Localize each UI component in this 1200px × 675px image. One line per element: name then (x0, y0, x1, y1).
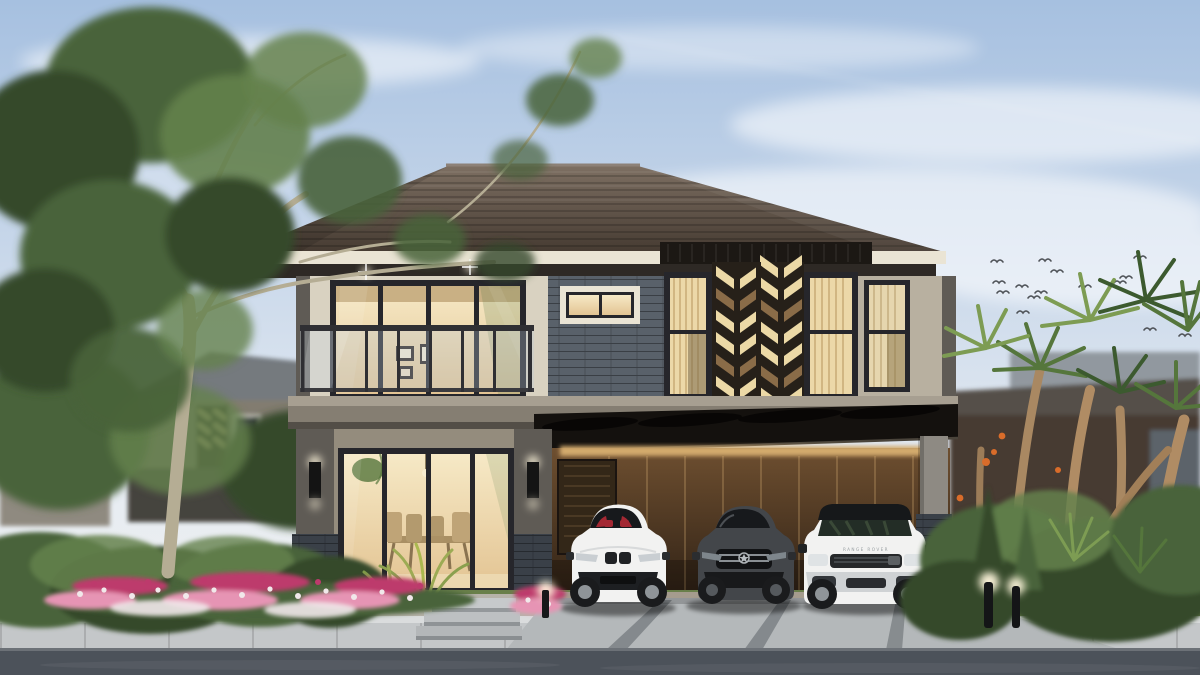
sedan-mirror-left (692, 552, 700, 560)
sedan-mirror-right (788, 552, 796, 560)
coupe-mirror-right (662, 552, 670, 560)
suv-mirror-left (798, 544, 807, 553)
gold-light-strip (560, 446, 942, 456)
suv-badge (888, 556, 900, 565)
side-window (864, 280, 910, 392)
wall-sconce-right (526, 455, 540, 510)
suv-black-roof (818, 504, 912, 520)
wall-sconce-left (308, 455, 322, 510)
scene-canvas: RANGE ROVER (0, 0, 1200, 675)
stone-wall-section (548, 276, 664, 402)
road (0, 648, 1200, 675)
sedan-grille (716, 549, 772, 569)
suv-hood-text: RANGE ROVER (843, 547, 889, 552)
parked-cars: RANGE ROVER (560, 504, 934, 616)
tall-window-right (804, 272, 858, 400)
architectural-render: RANGE ROVER (0, 0, 1200, 675)
tall-window-left (664, 272, 712, 400)
suv-grille (830, 554, 902, 568)
suv-headlight-left (808, 554, 828, 566)
balcony-glass-railing (300, 325, 534, 392)
coupe-mirror-left (566, 552, 574, 560)
